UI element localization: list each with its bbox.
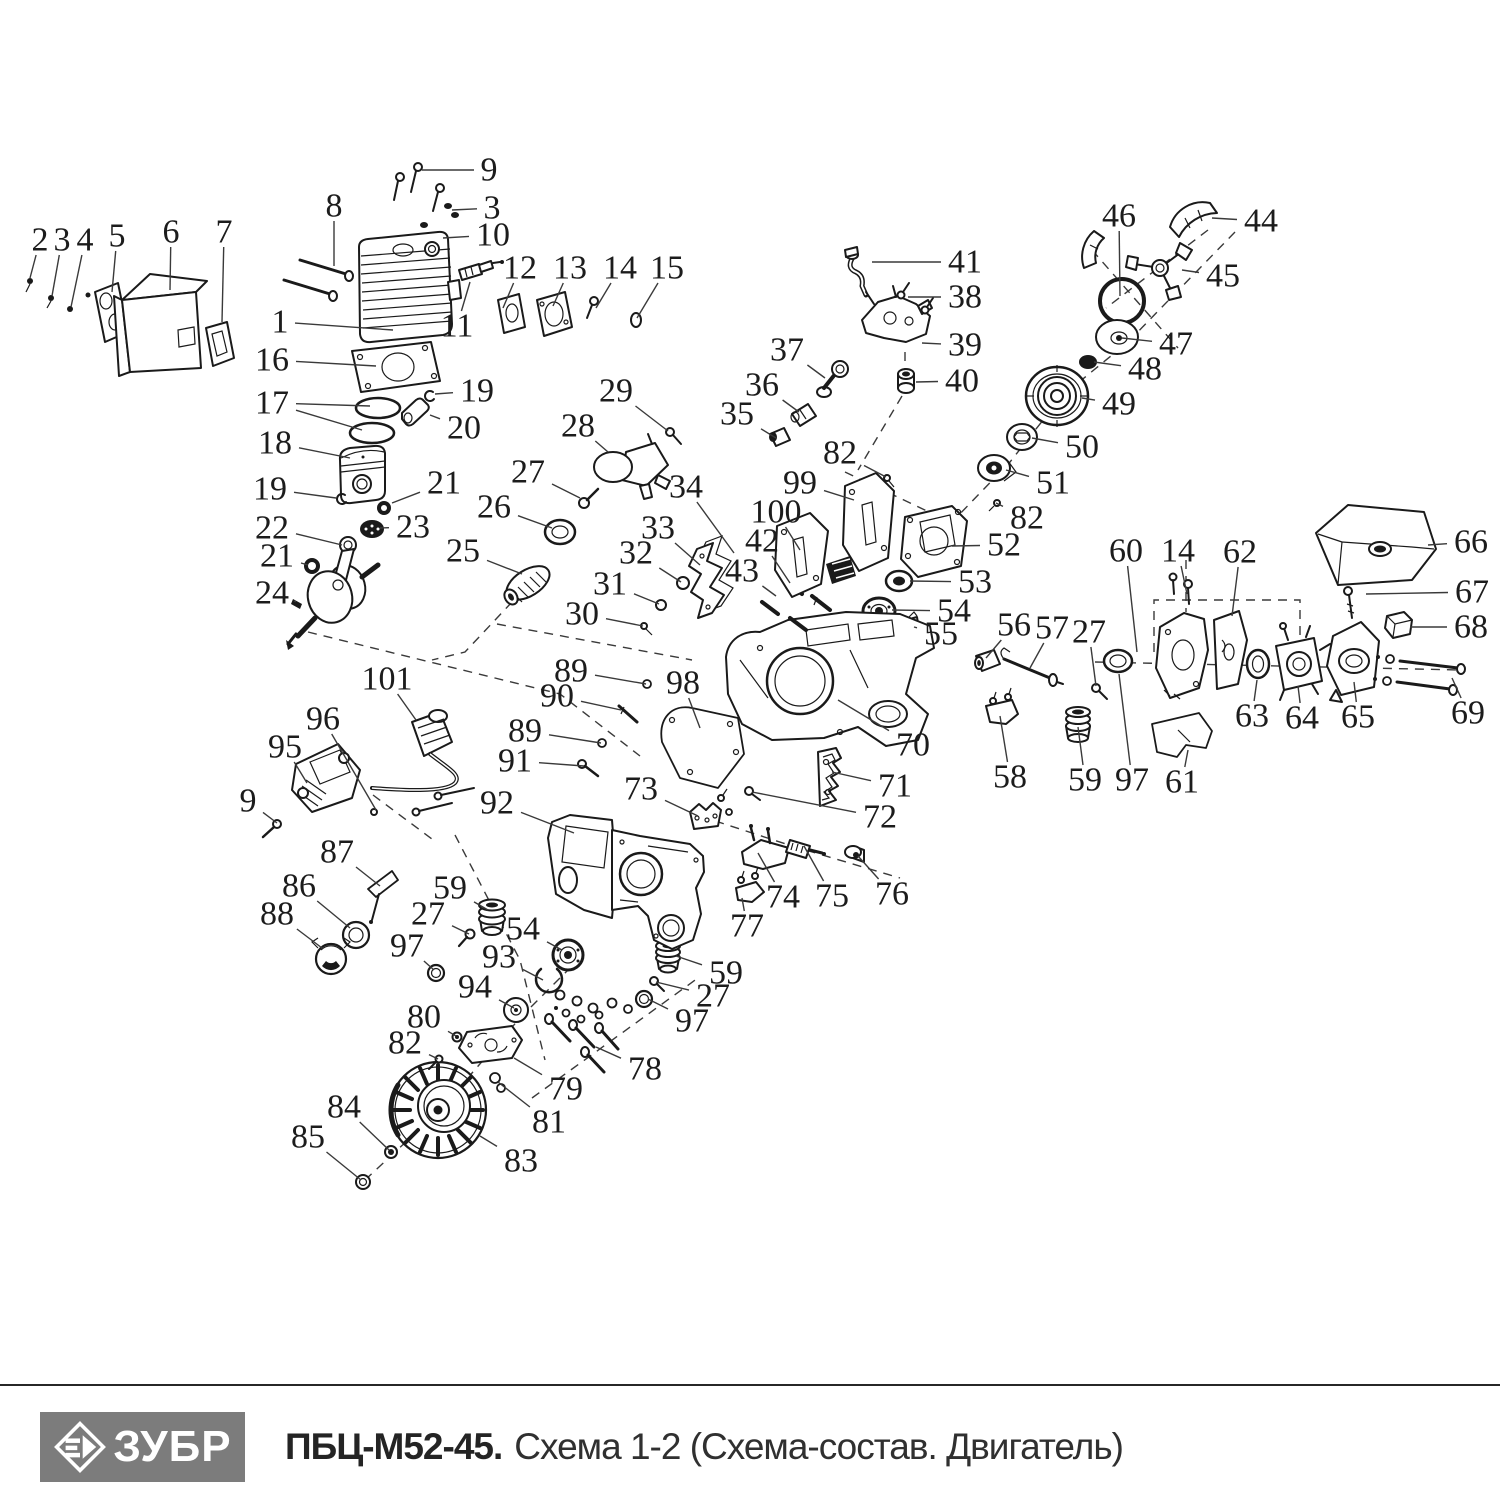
leader-line: [317, 901, 350, 928]
base-gasket-16: [352, 342, 440, 392]
choke-knob-68: [1385, 612, 1412, 638]
gasket-12: [498, 294, 525, 333]
leader-line: [595, 675, 646, 684]
washer-47: [1096, 320, 1138, 354]
part-label-29: 29: [599, 373, 668, 432]
leader-line: [294, 601, 296, 602]
part-number: 14: [603, 250, 637, 287]
part-number: 70: [896, 727, 930, 764]
crankshaft-22: [286, 537, 378, 650]
leader-line: [452, 209, 477, 210]
leader-line: [327, 1152, 362, 1180]
part-number: 87: [320, 834, 354, 871]
misc-left-parts: [312, 871, 398, 974]
part-number: 60: [1109, 533, 1143, 570]
part-number: 77: [730, 908, 764, 945]
part-label-5: 5: [109, 218, 126, 293]
part-number: 36: [745, 367, 779, 404]
part-number: 23: [396, 509, 430, 546]
part-number: 7: [216, 214, 233, 251]
leader-line: [222, 247, 224, 322]
part-number: 9: [481, 152, 498, 189]
part-number: 3: [54, 222, 71, 259]
leader-line: [356, 867, 380, 886]
washer-21b: [304, 558, 320, 574]
part-number: 85: [291, 1119, 325, 1156]
air-filter-cover-66: [1316, 505, 1436, 585]
bolts-69: [1373, 655, 1465, 695]
document-title: ПБЦ-М52-45. Схема 1-2 (Схема-состав. Дви…: [285, 1412, 1123, 1482]
piston-18: [340, 446, 385, 503]
leader-line: [922, 343, 941, 344]
chain-catcher-77: [736, 867, 764, 902]
part-number: 43: [725, 553, 759, 590]
heat-plate-73: [690, 789, 732, 829]
oil-pump-28: [594, 434, 670, 499]
part-label-45: 45: [1182, 258, 1240, 295]
part-number: 11: [441, 308, 474, 345]
part-label-17: 17: [255, 385, 370, 431]
bumper-spike-71: [818, 748, 841, 806]
bracket-74: [742, 824, 789, 869]
part-number: 19: [253, 471, 287, 508]
seal-53: [886, 571, 912, 591]
part-number: 73: [624, 771, 658, 808]
part-number: 12: [503, 250, 537, 287]
part-label-56: 56: [986, 607, 1031, 659]
leader-line: [430, 415, 440, 419]
part-label-68: 68: [1410, 609, 1488, 646]
part-label-14: 14: [596, 250, 637, 309]
part-label-79: 79: [514, 1058, 583, 1108]
leader-line: [1091, 647, 1096, 686]
leader-line: [952, 546, 980, 547]
leader-line: [636, 406, 669, 431]
carburetor-train: [1092, 505, 1465, 757]
part-label-26: 26: [477, 489, 552, 529]
leader-line: [518, 516, 552, 528]
circlip-19b: [425, 391, 434, 401]
part-label-48: 48: [1094, 351, 1162, 388]
piston-rings-17: [350, 398, 400, 443]
bracket-58: [986, 688, 1018, 724]
screw-82b: [989, 500, 1000, 511]
leader-line: [398, 694, 416, 720]
part-number: 75: [815, 878, 849, 915]
leader-line: [498, 1082, 530, 1107]
bushing-40: [898, 369, 914, 393]
leader-line: [52, 255, 59, 296]
leader-line: [480, 1136, 497, 1146]
part-number: 10: [476, 217, 510, 254]
leader-line: [1212, 218, 1237, 220]
leader-line: [637, 283, 658, 318]
wrist-pin-20: [402, 399, 429, 426]
part-label-58: 58: [993, 716, 1027, 796]
bearing-50: [1007, 424, 1037, 450]
part-number: 63: [1235, 698, 1269, 735]
worm-gear-25: [501, 559, 555, 607]
bearing-54b: [553, 940, 583, 970]
part-number: 98: [666, 665, 700, 702]
leader-line: [1094, 362, 1121, 366]
cylinder-56: [975, 650, 1000, 671]
part-label-22: 22: [255, 510, 342, 547]
part-label-57: 57: [1030, 610, 1069, 669]
part-number: 4: [77, 222, 94, 259]
part-label-28: 28: [561, 408, 608, 453]
part-number: 27: [1072, 614, 1106, 651]
part-number: 26: [477, 489, 511, 526]
leader-line: [916, 382, 938, 383]
part-label-60: 60: [1109, 533, 1143, 653]
part-number: 6: [163, 214, 180, 251]
part-label-69: 69: [1451, 678, 1485, 732]
leader-line: [263, 812, 277, 823]
part-number: 68: [1454, 609, 1488, 646]
part-number: 74: [766, 879, 800, 916]
spark-plug-cap-101: [372, 710, 457, 790]
crankcase-left-92: [548, 815, 704, 949]
part-label-15: 15: [637, 250, 684, 319]
part-number: 45: [1206, 258, 1240, 295]
part-number: 28: [561, 408, 595, 445]
part-number: 82: [388, 1025, 422, 1062]
filter-36: [791, 404, 816, 426]
ignition-coil-95: [292, 744, 360, 812]
seal-97d: [636, 991, 652, 1007]
leader-line: [1030, 643, 1044, 668]
bracket-87: [368, 871, 398, 924]
part-number: 66: [1454, 524, 1488, 561]
leader-line: [914, 627, 917, 628]
part-label-97: 97: [390, 928, 434, 971]
part-label-82: 82: [823, 435, 886, 478]
leader-line: [435, 393, 453, 394]
part-number: 91: [498, 743, 532, 780]
washer-21a: [377, 501, 391, 515]
washer-32: [677, 577, 689, 589]
part-label-3: 3: [52, 222, 71, 297]
part-number: 67: [1455, 574, 1489, 611]
case-gasket-98: [661, 707, 744, 788]
part-number: 9: [240, 783, 257, 820]
flange-13: [537, 292, 572, 336]
part-label-87: 87: [320, 834, 380, 887]
part-number: 40: [945, 363, 979, 400]
clutch-drum-49: [1026, 365, 1088, 427]
leader-line: [294, 492, 336, 498]
part-number: 83: [504, 1143, 538, 1180]
part-number: 101: [362, 661, 413, 698]
parts-diagram-page: 1234567893101112131415161718191920212122…: [0, 0, 1500, 1500]
clutch-spider-45: [1126, 243, 1192, 300]
part-number: 8: [326, 188, 343, 225]
case-fasteners-89-90-91: [578, 680, 651, 776]
part-number: 39: [948, 327, 982, 364]
part-label-27: 27: [511, 454, 580, 499]
part-number: 38: [948, 279, 982, 316]
schema-subtitle: Схема 1-2 (Схема-состав. Двигатель): [514, 1426, 1123, 1468]
part-number: 61: [1165, 764, 1199, 801]
leader-line: [659, 568, 681, 582]
filter-base-65: [1327, 622, 1379, 702]
part-number: 69: [1451, 695, 1485, 732]
flywheel-83: [390, 1062, 486, 1158]
part-label-40: 40: [916, 363, 979, 400]
leader-line: [549, 735, 601, 743]
leader-line: [892, 610, 930, 611]
part-number: 82: [1010, 500, 1044, 537]
part-number: 2: [32, 222, 49, 259]
part-number: 79: [549, 1071, 583, 1108]
part-number: 56: [997, 607, 1031, 644]
elbow-37: [817, 361, 848, 397]
washers-81: [490, 1073, 505, 1092]
woodruff-key-24: [291, 599, 302, 609]
oil-seal-26: [545, 520, 575, 544]
leader-line: [910, 581, 951, 582]
oil-cap-88: [312, 938, 350, 974]
leader-line: [1232, 567, 1238, 616]
part-number: 92: [480, 785, 514, 822]
leader-line: [634, 594, 659, 604]
part-number: 21: [427, 465, 461, 502]
part-number: 20: [447, 410, 481, 447]
part-number: 65: [1341, 699, 1375, 736]
part-number: 18: [258, 425, 292, 462]
part-label-24: 24: [255, 575, 296, 612]
screws-96: [371, 788, 474, 816]
part-number: 59: [433, 870, 467, 907]
weight-35: [769, 428, 790, 446]
leader-line: [581, 701, 621, 710]
part-number: 1: [272, 304, 289, 341]
part-number: 44: [1244, 203, 1278, 240]
part-number: 19: [460, 373, 494, 410]
part-number: 90: [540, 678, 574, 715]
part-number: 41: [948, 244, 982, 281]
part-label-78: 78: [596, 1047, 662, 1088]
part-number: 50: [1065, 429, 1099, 466]
rod-57: [1001, 648, 1063, 686]
part-number: 13: [553, 250, 587, 287]
nut-80: [453, 1033, 462, 1042]
leader-line: [1119, 674, 1130, 765]
leader-line: [595, 441, 608, 452]
brand-logo: ЗУБР: [40, 1412, 245, 1482]
buffer-59r: [1066, 707, 1090, 742]
part-number: 29: [599, 373, 633, 410]
leader-line: [807, 365, 825, 378]
leader-line: [1119, 231, 1120, 296]
part-label-50: 50: [1032, 429, 1099, 466]
leader-line: [697, 502, 734, 553]
leader-line: [752, 792, 856, 812]
part-number: 84: [327, 1089, 361, 1126]
leader-line: [1128, 566, 1137, 652]
part-number: 34: [669, 469, 703, 506]
washer-31: [656, 600, 666, 610]
clutch-shoe-44: [1170, 202, 1217, 237]
intake-spacer-60: [1156, 613, 1208, 699]
muffler-body-6: [114, 274, 207, 376]
leader-line: [296, 534, 342, 545]
leader-line: [1366, 593, 1448, 595]
footer-divider: [0, 1384, 1500, 1386]
part-number: 22: [255, 510, 289, 547]
part-number: 62: [1223, 534, 1257, 571]
part-number: 37: [770, 332, 804, 369]
cylinder-bolts-8: [284, 260, 353, 301]
gasket-61: [1152, 713, 1212, 757]
part-number: 59: [709, 955, 743, 992]
part-label-84: 84: [327, 1089, 389, 1151]
part-number: 88: [260, 896, 294, 933]
leader-line: [514, 1058, 542, 1075]
part-label-51: 51: [1006, 465, 1070, 502]
part-label-19: 19: [253, 471, 336, 508]
zubr-diamond-icon: [53, 1420, 107, 1474]
part-label-64: 64: [1285, 686, 1319, 737]
seal-97c: [1104, 650, 1132, 672]
part-number: 97: [1115, 762, 1149, 799]
carburetor-64: [1276, 623, 1330, 700]
screw-30: [641, 623, 652, 635]
muffler-gasket-7: [206, 322, 234, 366]
part-label-66: 66: [1428, 524, 1488, 561]
part-label-39: 39: [922, 327, 982, 364]
pawl-plate-79: [459, 1026, 522, 1063]
part-number: 47: [1159, 326, 1193, 363]
part-label-77: 77: [730, 898, 764, 945]
part-number: 24: [255, 575, 289, 612]
part-label-61: 61: [1165, 750, 1199, 801]
part-number: 51: [1036, 465, 1070, 502]
screw-67: [1344, 587, 1354, 618]
part-number: 94: [458, 969, 492, 1006]
part-number: 57: [1035, 610, 1069, 647]
leader-line: [360, 1122, 389, 1150]
part-number: 16: [255, 342, 289, 379]
part-number: 27: [511, 454, 545, 491]
part-number: 59: [1068, 762, 1102, 799]
model-number: ПБЦ-М52-45.: [285, 1426, 502, 1468]
part-label-10: 10: [443, 217, 510, 254]
part-number: 95: [268, 729, 302, 766]
leader-line: [606, 619, 643, 626]
starter-hardware-78: [545, 991, 632, 1073]
gasket-62: [1214, 611, 1247, 689]
leader-line: [552, 484, 580, 498]
part-number: 25: [446, 533, 480, 570]
part-label-83: 83: [480, 1136, 538, 1180]
part-label-63: 63: [1235, 680, 1269, 735]
part-label-18: 18: [258, 425, 350, 462]
part-label-19: 19: [435, 373, 494, 410]
part-number: 54: [506, 911, 540, 948]
part-number: 78: [628, 1051, 662, 1088]
part-label-97: 97: [1115, 674, 1149, 799]
part-number: 100: [751, 494, 802, 531]
part-label-25: 25: [446, 533, 522, 575]
screw-9b: [263, 820, 281, 837]
part-label-27: 27: [1072, 614, 1106, 687]
brand-name: ЗУБР: [113, 1412, 231, 1482]
part-number: 15: [650, 250, 684, 287]
part-label-62: 62: [1223, 534, 1257, 617]
part-label-54: 54: [506, 911, 562, 951]
part-label-2: 2: [30, 222, 49, 279]
part-label-21: 21: [392, 465, 461, 504]
part-number: 82: [823, 435, 857, 472]
seal-63: [1247, 650, 1269, 678]
part-label-7: 7: [216, 214, 233, 323]
part-number: 33: [641, 510, 675, 547]
part-label-8: 8: [326, 188, 343, 267]
leader-line: [296, 410, 362, 430]
leader-line: [783, 400, 799, 412]
part-number: 96: [306, 701, 340, 738]
leader-line: [832, 772, 871, 781]
part-number: 81: [532, 1104, 566, 1141]
part-number: 58: [993, 759, 1027, 796]
bar-plate-99: [843, 473, 894, 571]
spark-plug-11: [459, 260, 504, 280]
leader-line: [762, 586, 776, 596]
part-number: 49: [1102, 386, 1136, 423]
leader-line: [392, 492, 420, 503]
part-label-85: 85: [291, 1119, 361, 1181]
screw-27r: [1092, 684, 1107, 699]
cup-washer-51: [978, 455, 1016, 481]
muffler-group: [26, 274, 234, 376]
part-number: 76: [875, 876, 909, 913]
part-label-101: 101: [362, 661, 417, 721]
leader-line: [487, 560, 522, 574]
part-label-76: 76: [858, 856, 909, 913]
oil-hose-41: [845, 247, 866, 295]
part-number: 17: [255, 385, 289, 422]
part-label-9: 9: [422, 152, 498, 189]
screw-27a: [579, 489, 598, 508]
needle-bearing-23: [360, 520, 384, 538]
leader-line: [71, 255, 82, 307]
part-label-59: 59: [676, 955, 743, 992]
part-number: 72: [863, 799, 897, 836]
part-label-9: 9: [240, 783, 278, 824]
buffer-59a: [479, 900, 505, 936]
part-label-44: 44: [1212, 203, 1278, 240]
exploded-diagram: 1234567893101112131415161718191920212122…: [0, 0, 1500, 1500]
part-label-49: 49: [1082, 386, 1136, 423]
part-label-41: 41: [872, 244, 982, 281]
part-number: 55: [924, 616, 958, 653]
part-number: 46: [1102, 198, 1136, 235]
disc-94: [504, 998, 528, 1022]
part-label-34: 34: [669, 469, 734, 554]
part-number: 48: [1128, 351, 1162, 388]
leader-line: [596, 283, 611, 308]
part-number: 97: [390, 928, 424, 965]
clutch-shoe-46: [1082, 231, 1104, 268]
part-number: 64: [1285, 700, 1319, 737]
part-number: 14: [1161, 533, 1195, 570]
screw-27b: [459, 930, 475, 947]
part-number: 5: [109, 218, 126, 255]
leader-line: [170, 247, 171, 290]
part-label-20: 20: [430, 410, 481, 447]
